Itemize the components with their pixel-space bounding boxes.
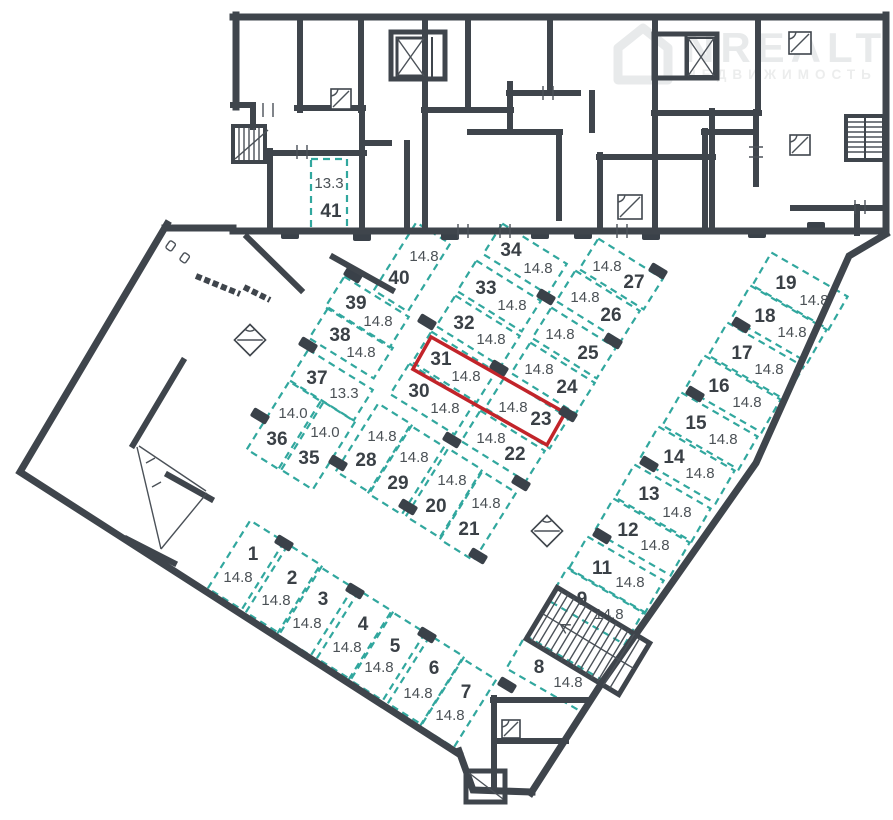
ramp-lines — [137, 446, 207, 549]
space-number: 21 — [458, 519, 480, 540]
space-area-label: 14.8 — [471, 495, 500, 512]
space-area-label: 14.8 — [524, 361, 553, 378]
space-area-label: 14.8 — [754, 361, 783, 378]
space-number: 7 — [461, 682, 472, 703]
space-area-label: 14.8 — [476, 430, 505, 447]
space-area-label: 14.8 — [437, 472, 466, 489]
space-boundary — [374, 222, 450, 311]
space-number: 5 — [390, 636, 401, 657]
space-area-label: 14.8 — [435, 707, 464, 724]
space-area-label: 14.8 — [498, 399, 527, 416]
wall-right-diagonal — [531, 234, 886, 793]
vent-hatch-icon — [618, 195, 642, 219]
space-area-label: 13.3 — [314, 175, 343, 192]
space-number: 16 — [708, 376, 729, 397]
space-area-label: 14.8 — [777, 324, 806, 341]
space-number: 22 — [504, 444, 525, 465]
space-area-label: 14.8 — [545, 326, 574, 343]
elevator-top-middle — [391, 32, 445, 79]
space-area-label: 14.8 — [399, 449, 428, 466]
space-area-label: 14.8 — [662, 504, 691, 521]
wall-glazed-partition — [196, 276, 270, 300]
space-number: 39 — [345, 293, 366, 314]
space-area-label: 14.8 — [364, 659, 393, 676]
space-area-label: 14.8 — [346, 344, 375, 361]
space-number: 15 — [685, 413, 707, 434]
floor-plan-canvas: NREALT НЕДВИЖИМОСТЬ 114.8214.8314.8414.8… — [0, 0, 893, 820]
structural-column — [648, 262, 669, 280]
space-number: 31 — [430, 349, 452, 370]
space-area-label: 14.8 — [403, 685, 432, 702]
structural-column — [417, 313, 438, 331]
wall-ramp — [127, 361, 211, 563]
space-number: 40 — [388, 268, 409, 289]
wall-wc-corridor — [247, 237, 392, 290]
space-number: 24 — [556, 377, 578, 398]
stairs-top-right — [846, 116, 884, 160]
wc-fixtures — [165, 240, 190, 263]
space-number: 14 — [663, 447, 685, 468]
space-number: 36 — [266, 429, 287, 450]
space-number: 33 — [475, 278, 496, 299]
space-number: 25 — [577, 343, 599, 364]
space-area-label: 14.8 — [615, 574, 644, 591]
vent-hatch-icon — [789, 32, 811, 54]
space-area-label: 14.8 — [332, 639, 361, 656]
space-area-label: 14.8 — [497, 297, 526, 314]
space-number: 19 — [775, 273, 796, 294]
space-area-label: 14.8 — [261, 592, 290, 609]
space-area-label: 13.3 — [329, 385, 358, 402]
space-area-label: 14.8 — [592, 258, 621, 275]
parking-space-41[interactable]: 4113.3 — [311, 159, 347, 229]
space-area-label: 14.8 — [409, 248, 438, 265]
structural-column — [592, 527, 613, 545]
space-number: 26 — [600, 305, 621, 326]
space-area-label: 14.8 — [570, 289, 599, 306]
structural-column — [250, 407, 271, 425]
space-area-label: 14.8 — [708, 431, 737, 448]
space-number: 27 — [623, 272, 644, 293]
space-number: 18 — [754, 306, 775, 327]
space-number: 2 — [287, 568, 298, 589]
space-area-label: 14.8 — [223, 569, 252, 586]
space-number: 6 — [429, 658, 440, 679]
space-number: 32 — [453, 313, 474, 334]
floor-plan: NREALT НЕДВИЖИМОСТЬ 114.8214.8314.8414.8… — [0, 0, 893, 820]
space-area-label: 14.8 — [685, 465, 714, 482]
space-area-label: 14.8 — [367, 428, 396, 445]
space-area-label: 14.8 — [292, 615, 321, 632]
vent-hatch-icon — [531, 515, 562, 546]
space-area-label: 14.0 — [278, 405, 307, 422]
space-area-label: 14.0 — [310, 424, 339, 441]
space-number: 30 — [408, 381, 429, 402]
space-area-label: 14.8 — [553, 674, 582, 691]
space-number: 3 — [318, 589, 329, 610]
space-area-label: 14.8 — [363, 313, 392, 330]
structural-column — [536, 288, 557, 306]
space-area-label: 14.8 — [451, 368, 480, 385]
structural-column — [511, 474, 532, 492]
space-number: 38 — [329, 325, 350, 346]
structural-column — [497, 676, 518, 694]
vent-hatch-icon — [790, 135, 810, 155]
space-area-label: 14.8 — [640, 537, 669, 554]
space-area-label: 14.8 — [523, 260, 552, 277]
space-number: 29 — [387, 473, 408, 494]
space-number: 20 — [425, 496, 446, 517]
space-area-label: 14.8 — [476, 331, 505, 348]
space-number: 13 — [638, 484, 659, 505]
vent-hatch-icon — [502, 720, 520, 738]
parking-spaces-layer: 114.8214.8314.8414.8514.8614.8714.8814.8… — [208, 159, 848, 748]
space-number: 28 — [355, 450, 376, 471]
space-number: 12 — [617, 520, 638, 541]
space-number: 4 — [358, 614, 369, 635]
space-number: 17 — [731, 343, 752, 364]
space-number: 35 — [298, 448, 320, 469]
space-number: 41 — [320, 201, 342, 222]
space-number: 11 — [592, 558, 613, 579]
parking-space-40[interactable]: 4014.8 — [374, 222, 450, 311]
space-area-label: 14.8 — [430, 400, 459, 417]
structural-column — [468, 547, 489, 565]
vent-hatch-icon — [331, 89, 351, 109]
space-area-label: 14.8 — [732, 394, 761, 411]
space-number: 23 — [530, 409, 551, 430]
space-number: 1 — [248, 544, 259, 565]
space-number: 37 — [306, 368, 327, 389]
space-number: 8 — [534, 657, 545, 678]
vent-hatch-icon — [234, 324, 265, 355]
space-number: 34 — [500, 240, 522, 261]
stairs-top-left — [233, 126, 268, 162]
